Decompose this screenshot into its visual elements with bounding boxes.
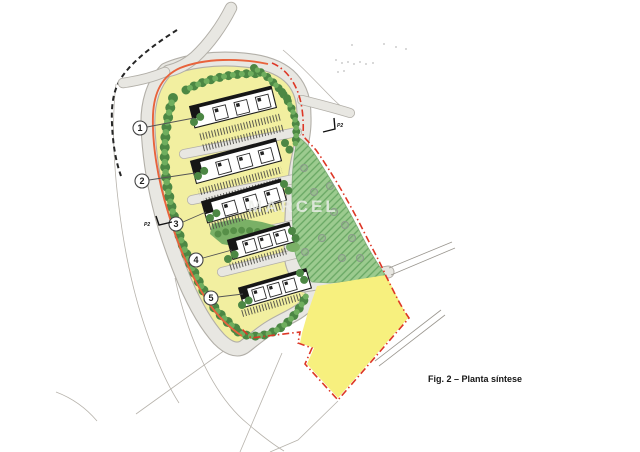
svg-text:3: 3 xyxy=(173,219,178,229)
svg-text:4: 4 xyxy=(193,255,198,265)
svg-text:P2: P2 xyxy=(144,222,150,228)
svg-text:P2: P2 xyxy=(337,123,343,129)
svg-text:1: 1 xyxy=(137,123,142,133)
site-plan-page: 1 2 3 4 5 P2 P2 MARCEL Fig. 2 – Plan xyxy=(0,0,640,452)
svg-text:5: 5 xyxy=(208,293,213,303)
green-planted-area xyxy=(292,137,386,283)
scan-speckles xyxy=(335,43,407,73)
site-plan-drawing: 1 2 3 4 5 P2 P2 xyxy=(0,0,640,452)
yellow-expansion-area xyxy=(300,275,408,398)
svg-text:2: 2 xyxy=(139,176,144,186)
section-marker-p2-east: P2 xyxy=(323,118,343,132)
figure-caption: Fig. 2 – Planta síntese xyxy=(428,374,522,384)
